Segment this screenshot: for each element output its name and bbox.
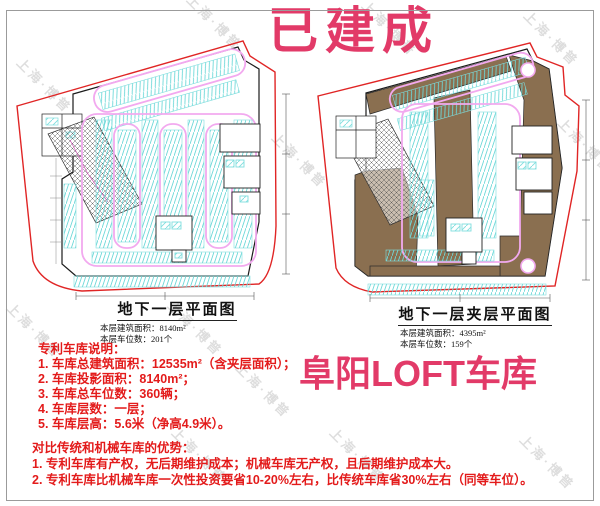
turnaround-circle-top (521, 63, 535, 77)
description-item: 1. 车库总建筑面积：12535m²（含夹层面积）； (38, 357, 296, 372)
description-item: 3. 车库总车位数：360辆； (38, 387, 296, 402)
advantages-item: 1. 专利车库有产权，无后期维护成本；机械车库无产权，且后期维护成本大。 (32, 456, 533, 472)
floorplan-mezzanine (304, 40, 600, 310)
plan-title: 地下一层夹层平面图 (398, 303, 551, 326)
advantages-notes: 对比传统和机械车库的优势： 1. 专利车库有产权，无后期维护成本；机械车库无产权… (32, 440, 533, 488)
turnaround-circle-bottom (521, 259, 535, 273)
description-item: 4. 车库层数：一层； (38, 402, 296, 417)
advantages-item: 2. 专利车库比机械车库一次性投资要省10-20%左右，比传统车库省30%左右（… (32, 472, 533, 488)
poster-canvas: 上海·博普上海·博普上海·博普上海·博普上海·博普上海·博普上海·博普上海·博普… (0, 0, 600, 506)
plan-area: 本层建筑面积：4395m² (400, 328, 554, 339)
description-item: 5. 车库层高：5.6米（净高4.9米）。 (38, 417, 296, 432)
description-item: 2. 车库投影面积：8140m²； (38, 372, 296, 387)
patent-garage-description: 专利车库说明： 1. 车库总建筑面积：12535m²（含夹层面积）； 2. 车库… (38, 342, 296, 432)
description-heading: 专利车库说明： (38, 342, 296, 357)
column-grid (50, 158, 62, 264)
floorplan-basement-level1 (10, 36, 306, 306)
project-title: 阜阳LOFT车库 (299, 356, 537, 392)
plan-title: 地下一层平面图 (117, 298, 236, 321)
annex-rooms (336, 116, 376, 158)
plan-area: 本层建筑面积：8140m² (100, 323, 258, 334)
caption-mezzanine: 地下一层夹层平面图 本层建筑面积：4395m² 本层车位数：159个 (396, 303, 554, 349)
caption-basement-level1: 地下一层平面图 本层建筑面积：8140m² 本层车位数：201个 (96, 298, 258, 344)
advantages-heading: 对比传统和机械车库的优势： (32, 440, 533, 456)
plan-spaces: 本层车位数：159个 (400, 339, 554, 350)
